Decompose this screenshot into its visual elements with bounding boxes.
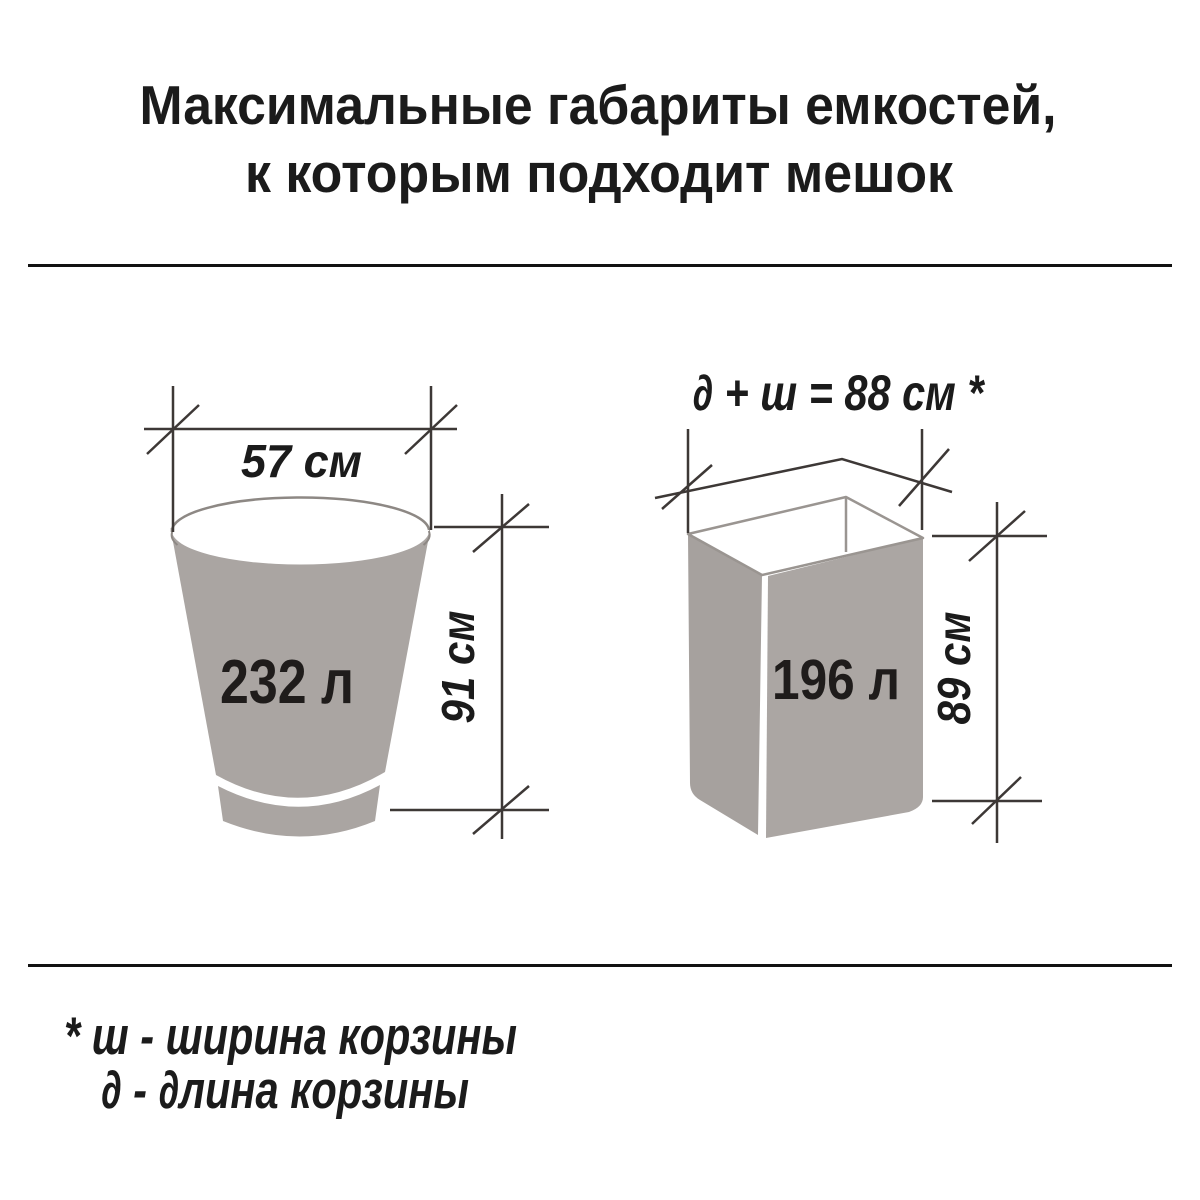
svg-text:∂ + ш = 88 см *: ∂ + ш = 88 см *: [693, 365, 986, 421]
svg-text:196 л: 196 л: [772, 648, 900, 712]
svg-text:к которым подходит мешок: к которым подходит мешок: [245, 142, 953, 204]
svg-text:* ш - ширина корзины: * ш - ширина корзины: [64, 1007, 517, 1066]
svg-text:∂ - ∂лина корзины: ∂ - ∂лина корзины: [101, 1061, 469, 1120]
svg-text:91 см: 91 см: [432, 611, 484, 724]
svg-text:Максимальные габариты емкостей: Максимальные габариты емкостей,: [140, 74, 1057, 136]
svg-text:89 см: 89 см: [928, 612, 980, 725]
svg-text:57 см: 57 см: [241, 435, 362, 487]
svg-text:232 л: 232 л: [220, 648, 354, 717]
